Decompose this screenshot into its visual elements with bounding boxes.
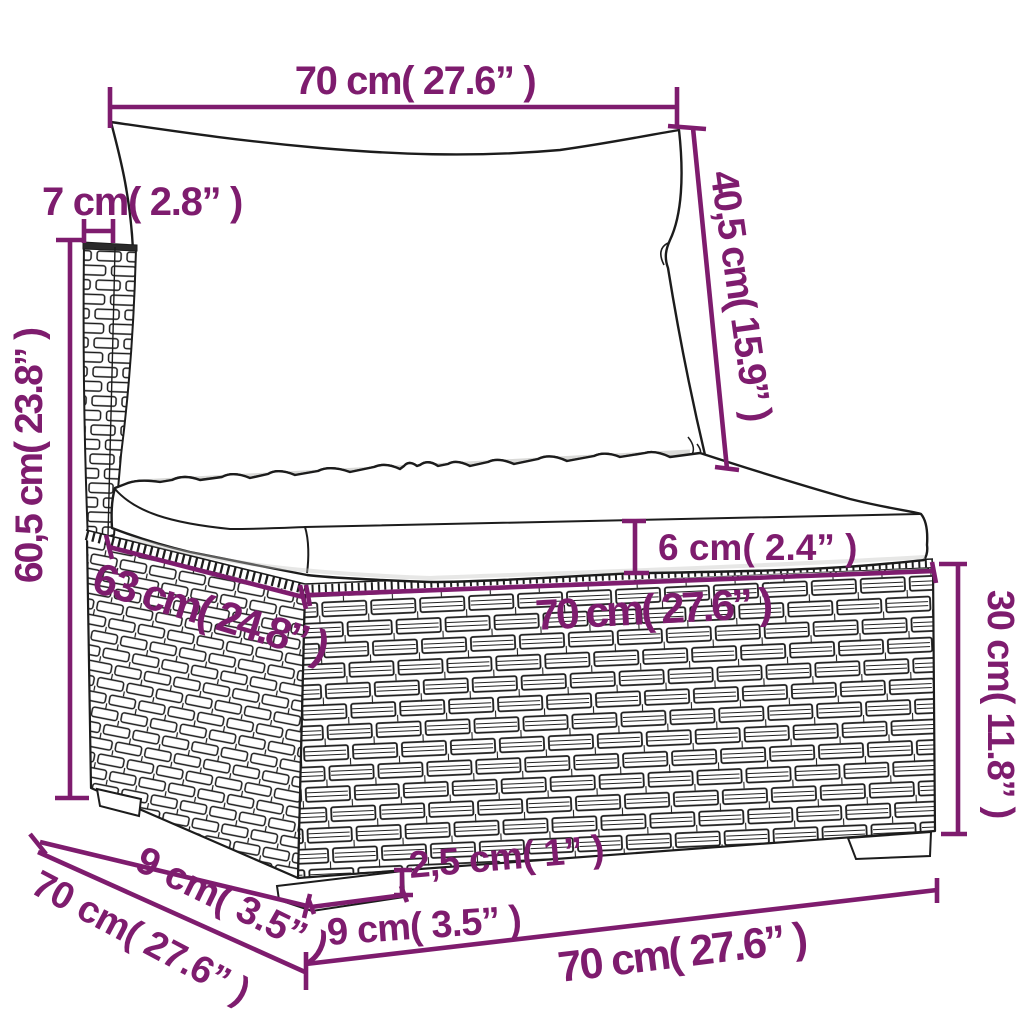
svg-text:30 cm( 11.8” ): 30 cm( 11.8” ) bbox=[979, 590, 1021, 818]
svg-text:70 cm( 27.6” ): 70 cm( 27.6” ) bbox=[555, 914, 809, 992]
svg-text:60,5 cm( 23.8” ): 60,5 cm( 23.8” ) bbox=[8, 328, 51, 583]
svg-text:7 cm( 2.8” ): 7 cm( 2.8” ) bbox=[42, 180, 242, 224]
svg-text:40,5 cm( 15.9” ): 40,5 cm( 15.9” ) bbox=[702, 168, 780, 424]
svg-text:6 cm( 2.4” ): 6 cm( 2.4” ) bbox=[658, 527, 857, 568]
svg-text:9 cm( 3.5” ): 9 cm( 3.5” ) bbox=[326, 899, 523, 954]
svg-text:70 cm( 27.6” ): 70 cm( 27.6” ) bbox=[295, 59, 536, 103]
